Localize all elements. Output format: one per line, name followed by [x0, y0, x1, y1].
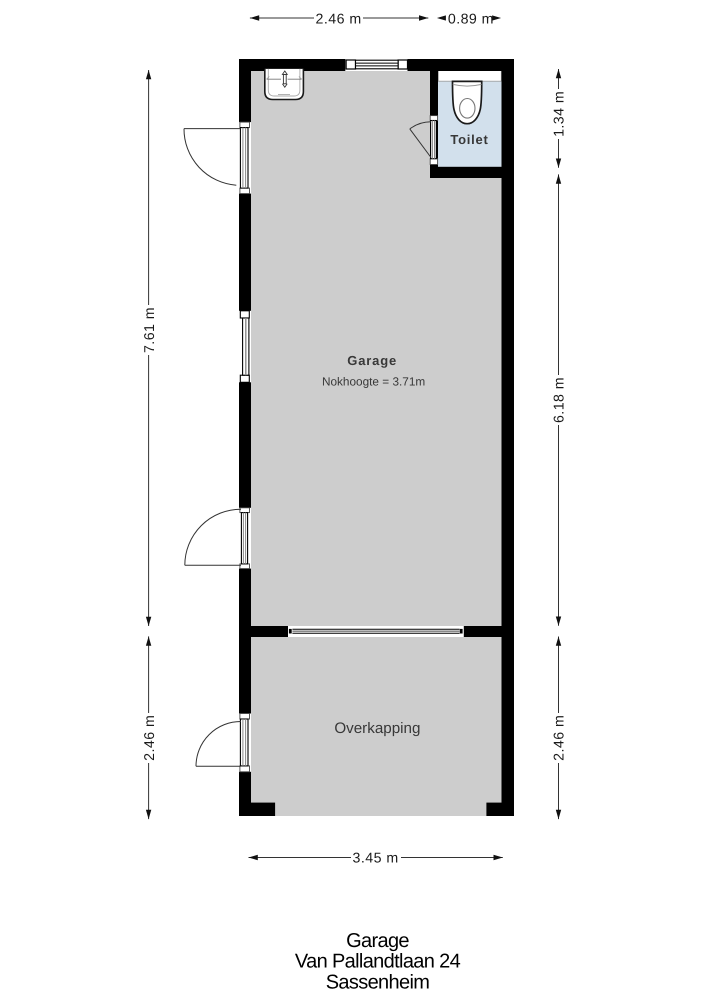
svg-text:Van Pallandtlaan 24: Van Pallandtlaan 24	[295, 951, 461, 973]
svg-text:7.61 m: 7.61 m	[142, 307, 158, 353]
svg-text:Garage: Garage	[346, 930, 409, 952]
svg-text:2.46 m: 2.46 m	[552, 715, 568, 761]
svg-text:Overkapping: Overkapping	[334, 720, 420, 737]
svg-text:3.45 m: 3.45 m	[353, 851, 399, 867]
svg-text:0.89 m: 0.89 m	[448, 12, 494, 28]
svg-text:6.18 m: 6.18 m	[552, 377, 568, 423]
svg-text:Sassenheim: Sassenheim	[326, 971, 430, 993]
svg-text:2.46 m: 2.46 m	[142, 715, 158, 761]
svg-text:Garage: Garage	[347, 353, 397, 368]
svg-text:2.46 m: 2.46 m	[316, 12, 362, 28]
svg-text:1.34 m: 1.34 m	[552, 91, 568, 137]
svg-text:Toilet: Toilet	[450, 132, 488, 147]
svg-text:Nokhoogte = 3.71m: Nokhoogte = 3.71m	[322, 375, 425, 389]
